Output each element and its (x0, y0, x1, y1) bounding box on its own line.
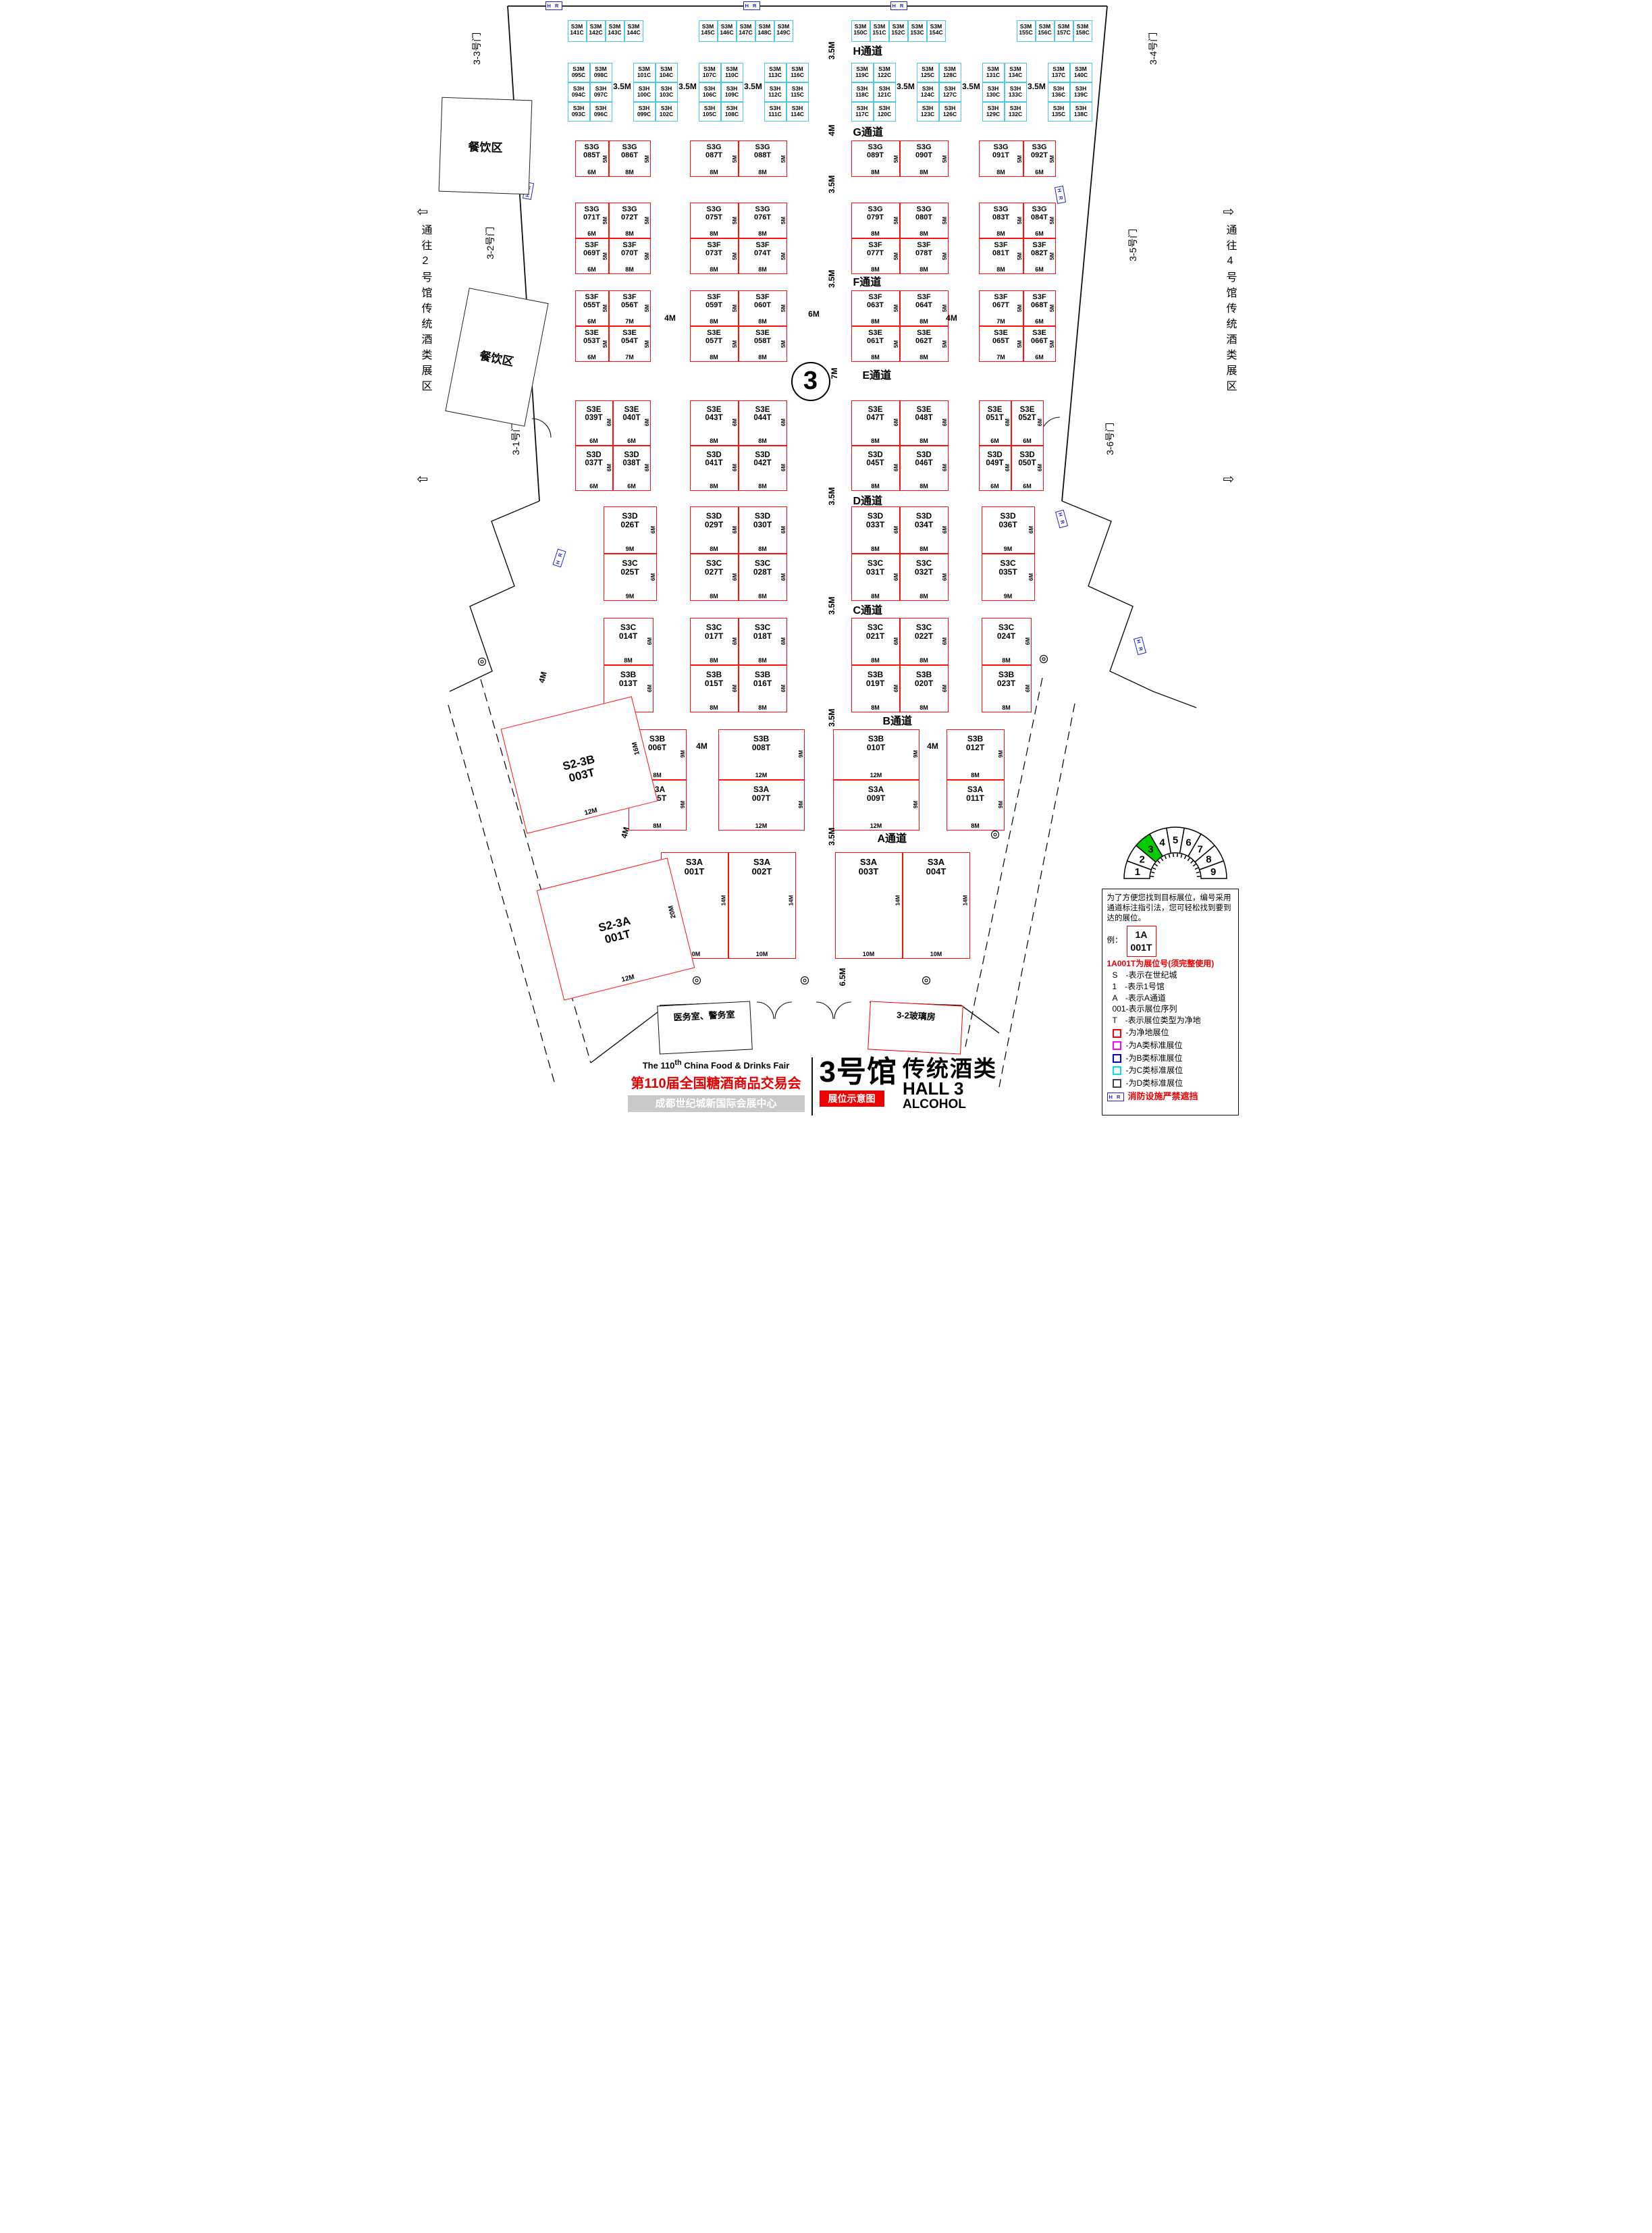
booth-S3H120C[interactable]: S3H120C (874, 102, 896, 122)
dim-label: 3.5M (827, 820, 836, 853)
booth-S3M141C[interactable]: S3M141C (568, 20, 587, 42)
legend-type: -为A类标准展位 (1113, 1041, 1233, 1051)
booth-S3F056T[interactable]: S3F056T5M7M (609, 290, 651, 326)
booth-S3B010T[interactable]: S3B010T9M12M (833, 729, 920, 780)
fire-warning: 消防设施严禁遮挡 (1128, 1091, 1198, 1103)
booth-S3H135C[interactable]: S3H135C (1048, 102, 1070, 122)
dim-label: 4M (936, 313, 968, 323)
dim-label: 3.5M (955, 82, 988, 91)
booth-S3D033T[interactable]: S3D033T6M8M (851, 506, 900, 554)
booth-S3G072T[interactable]: S3G072T5M8M (609, 203, 651, 238)
dim-label: 4M (827, 114, 836, 147)
booth-S3M152C[interactable]: S3M152C (889, 20, 908, 42)
dining-area: 餐饮区 (438, 97, 532, 195)
booth-S3G086T[interactable]: S3G086T5M8M (609, 140, 651, 177)
booth-S3H126C[interactable]: S3H126C (939, 102, 961, 122)
booth-S3M158C[interactable]: S3M158C (1073, 20, 1092, 42)
minimap-tick (1184, 856, 1185, 859)
booth-S3M134C[interactable]: S3M134C (1005, 63, 1027, 82)
booth-S3F070T[interactable]: S3F070T5M8M (609, 238, 651, 274)
booth-S3H115C[interactable]: S3H115C (787, 82, 809, 102)
minimap-tick (1193, 864, 1196, 866)
dim-label: 3.5M (606, 82, 639, 91)
booth-S3G092T[interactable]: S3G092T5M6M (1023, 140, 1056, 177)
minimap-tick (1169, 854, 1169, 858)
minimap-hall-number: 6 (1185, 837, 1191, 848)
legend-type-swatch (1113, 1029, 1121, 1038)
minimap-tick (1157, 861, 1160, 864)
minimap-tick (1161, 858, 1163, 861)
booth-S3D030T[interactable]: S3D030T6M8M (739, 506, 787, 554)
booth-S3A009T[interactable]: S3A009T9M12M (833, 780, 920, 831)
dim-label: 3.5M (1021, 82, 1053, 91)
minimap-tick (1154, 864, 1157, 866)
booth-S3H114C[interactable]: S3H114C (787, 102, 809, 122)
door-label: 3-2号门 (483, 227, 497, 259)
booth-S3M157C[interactable]: S3M157C (1055, 20, 1073, 42)
booth-S3E065T[interactable]: S3E065T5M7M (979, 326, 1023, 362)
room-service: 医务室、警务室 (657, 1001, 753, 1054)
title-divider (811, 1057, 813, 1115)
hydrant-marker: H R (545, 1, 562, 10)
left-arrow-icon: ⇦ (417, 205, 429, 219)
booth-S3M122C[interactable]: S3M122C (874, 63, 896, 82)
minimap-hall-number: 8 (1206, 854, 1211, 866)
booth-S3M101C[interactable]: S3M101C (633, 63, 656, 82)
dim-label: 3.5M (827, 702, 836, 734)
right-arrow-icon: ⇨ (1223, 473, 1235, 486)
booth-S3H139C[interactable]: S3H139C (1070, 82, 1092, 102)
booth-S3G071T[interactable]: S3G071T5M6M (575, 203, 609, 238)
booth-S3G087T[interactable]: S3G087T5M8M (690, 140, 739, 177)
booth-S3H111C[interactable]: S3H111C (764, 102, 787, 122)
booth-S3C035T[interactable]: S3C035T6M9M (982, 554, 1035, 601)
booth-S3G085T[interactable]: S3G085T5M6M (575, 140, 609, 177)
fair-name-en: The 110th China Food & Drinks Fair (628, 1059, 805, 1070)
hydrant-marker: H R (552, 549, 566, 568)
dim-label: 4M (686, 741, 718, 751)
booth-S3D042T[interactable]: S3D042T6M8M (739, 446, 787, 491)
minimap-tick (1188, 858, 1190, 861)
booth-S3M104C[interactable]: S3M104C (656, 63, 678, 82)
hall-category-cn: 传统酒类 (903, 1057, 997, 1080)
booth-S3C022T[interactable]: S3C022T6M8M (900, 618, 949, 665)
booth-S3M142C[interactable]: S3M142C (587, 20, 606, 42)
legend-type-swatch (1113, 1066, 1121, 1075)
booth-S3F063T[interactable]: S3F063T5M8M (851, 290, 900, 326)
booth-S3E062T[interactable]: S3E062T5M8M (900, 326, 949, 362)
booth-S3F081T[interactable]: S3F081T5M8M (979, 238, 1023, 274)
booth-S3M154C[interactable]: S3M154C (927, 20, 946, 42)
booth-S3G083T[interactable]: S3G083T5M8M (979, 203, 1023, 238)
booth-S3H099C[interactable]: S3H099C (633, 102, 656, 122)
hydrant-marker: H R (1133, 637, 1146, 656)
booth-S3E052T[interactable]: S3E052T6M6M (1011, 400, 1044, 446)
minimap-hall-number: 3 (1148, 843, 1153, 855)
booth-S3A004T[interactable]: S3A004T14M10M (903, 852, 970, 959)
booth-S3M143C[interactable]: S3M143C (606, 20, 624, 42)
booth-S3G079T[interactable]: S3G079T5M8M (851, 203, 900, 238)
booth-S3E061T[interactable]: S3E061T5M8M (851, 326, 900, 362)
dining-area: 餐饮区 (445, 288, 548, 426)
booth-S3M140C[interactable]: S3M140C (1070, 63, 1092, 82)
booth-S3M113C[interactable]: S3M113C (764, 63, 787, 82)
legend-type-label: -为A类标准展位 (1126, 1041, 1183, 1051)
minimap-hall-number: 7 (1197, 843, 1202, 855)
booth-S3H108C[interactable]: S3H108C (721, 102, 743, 122)
dim-label: 7M (830, 357, 839, 390)
aisle-label: H通道 (853, 42, 883, 58)
dim-label: 4M (617, 818, 633, 847)
hall-category-en: ALCOHOL (903, 1098, 997, 1112)
hydrant-marker: H R (890, 1, 907, 10)
booth-S3F067T[interactable]: S3F067T5M7M (979, 290, 1023, 326)
dim-label: 6.5M (838, 961, 847, 993)
legend-type-label: -为净地展位 (1126, 1028, 1169, 1039)
legend-type-label: -为D类标准展位 (1126, 1078, 1183, 1089)
minimap-tick (1196, 872, 1199, 872)
room-glass: 3-2玻璃房 (868, 1001, 963, 1054)
booth-S3H132C[interactable]: S3H132C (1005, 102, 1027, 122)
minimap-hall-number: 4 (1159, 837, 1165, 848)
booth-S3G089T[interactable]: S3G089T5M8M (851, 140, 900, 177)
booth-S3C018T[interactable]: S3C018T6M8M (739, 618, 787, 665)
legend-key: 1 -表示1号馆 (1113, 982, 1233, 993)
minimap-hall-number: 5 (1172, 835, 1177, 846)
booth-S3E044T[interactable]: S3E044T6M8M (739, 400, 787, 446)
minimap-hall-number: 1 (1134, 866, 1140, 878)
aisle-label: F通道 (853, 273, 882, 289)
venue-name: 成都世纪城新国际会展中心 (628, 1095, 805, 1112)
booth-S3M145C[interactable]: S3M145C (699, 20, 718, 42)
fair-name-en-prefix: The 110 (643, 1060, 675, 1070)
fair-name-en-suffix: China Food & Drinks Fair (682, 1060, 790, 1070)
minimap-tick (1152, 868, 1156, 869)
booth-S3M147C[interactable]: S3M147C (737, 20, 755, 42)
legend-type-swatch (1113, 1041, 1121, 1050)
booth-S3D029T[interactable]: S3D029T6M8M (690, 506, 739, 554)
legend-example-note: 1A001T为展位号(须完整使用) (1107, 959, 1233, 970)
door-label: 3-4号门 (1146, 32, 1160, 65)
booth-S3M150C[interactable]: S3M150C (851, 20, 870, 42)
hall-name-cn: 3号馆 (820, 1057, 897, 1087)
legend-type-swatch (1113, 1054, 1121, 1063)
example-booth-line2: 001T (1127, 941, 1156, 955)
title-block: The 110th China Food & Drinks Fair 第110届… (628, 1057, 1100, 1115)
booth-S3E048T[interactable]: S3E048T6M8M (900, 400, 949, 446)
hydrant-marker: H R (743, 1, 760, 10)
fair-name-cn: 第110届全国糖酒商品交易会 (628, 1072, 805, 1092)
booth-S3B023T[interactable]: S3B023T6M8M (982, 665, 1032, 712)
booth-S3B012T[interactable]: S3B012T9M8M (947, 729, 1005, 780)
booth-S3C017T[interactable]: S3C017T6M8M (690, 618, 739, 665)
booth-S3M107C[interactable]: S3M107C (699, 63, 721, 82)
booth-S2-3A001T[interactable]: S2-3A001T20M12M (536, 858, 695, 1000)
legend-key-list: S -表示在世纪城1 -表示1号馆A -表示A通道001-表示展位序列T -表示… (1107, 970, 1233, 1026)
legend-key: A -表示A通道 (1113, 993, 1233, 1004)
booth-S3E058T[interactable]: S3E058T5M8M (739, 326, 787, 362)
legend-type-swatch (1113, 1079, 1121, 1088)
aisle-label: D通道 (853, 492, 883, 508)
booth-S3H138C[interactable]: S3H138C (1070, 102, 1092, 122)
booth-S3M148C[interactable]: S3M148C (755, 20, 774, 42)
booth-S3C021T[interactable]: S3C021T6M8M (851, 618, 900, 665)
booth-S3M146C[interactable]: S3M146C (718, 20, 737, 42)
hydrant-marker-legend: H R (1107, 1093, 1124, 1101)
booth-S3F059T[interactable]: S3F059T5M8M (690, 290, 739, 326)
legend-type-label: -为B类标准展位 (1126, 1053, 1183, 1064)
booth-S3A007T[interactable]: S3A007T9M12M (718, 780, 805, 831)
minimap-hall-number: 9 (1210, 866, 1215, 878)
booth-S3D041T[interactable]: S3D041T6M8M (690, 446, 739, 491)
legend-type: -为B类标准展位 (1113, 1053, 1233, 1064)
booth-S3G088T[interactable]: S3G088T5M8M (739, 140, 787, 177)
left-arrow-icon: ⇦ (417, 473, 429, 486)
dim-label: 3.5M (827, 263, 836, 295)
booth-S3M156C[interactable]: S3M156C (1036, 20, 1055, 42)
hydrant-marker: H R (1054, 186, 1065, 204)
aisle-label: A通道 (878, 829, 907, 845)
booth-S3C025T[interactable]: S3C025T6M9M (604, 554, 657, 601)
booth-S3M128C[interactable]: S3M128C (939, 63, 961, 82)
booth-S3E054T[interactable]: S3E054T5M7M (609, 326, 651, 362)
dim-label: 3.5M (827, 589, 836, 622)
booth-S3B016T[interactable]: S3B016T6M8M (739, 665, 787, 712)
booth-S3H094C[interactable]: S3H094C (568, 82, 590, 102)
door-label: 3-5号门 (1126, 229, 1140, 261)
booth-S3F068T[interactable]: S3F068T5M6M (1023, 290, 1056, 326)
booth-S3E057T[interactable]: S3E057T5M8M (690, 326, 739, 362)
booth-S3M144C[interactable]: S3M144C (624, 20, 643, 42)
legend-type: -为D类标准展位 (1113, 1078, 1233, 1089)
dim-label: 6M (798, 309, 830, 319)
booth-S3H123C[interactable]: S3H123C (917, 102, 939, 122)
booth-S3D049T[interactable]: S3D049T6M6M (979, 446, 1011, 491)
booth-S3F055T[interactable]: S3F055T5M6M (575, 290, 609, 326)
hall-number-badge: 3 (791, 362, 830, 401)
booth-S3A002T[interactable]: S3A002T14M10M (728, 852, 796, 959)
booth-S3M098C[interactable]: S3M098C (590, 63, 612, 82)
booth-S3B020T[interactable]: S3B020T6M8M (900, 665, 949, 712)
booth-S3E039T[interactable]: S3E039T6M6M (575, 400, 613, 446)
booth-S3M149C[interactable]: S3M149C (774, 20, 793, 42)
right-arrow-icon: ⇨ (1223, 205, 1235, 219)
booth-S3H093C[interactable]: S3H093C (568, 102, 590, 122)
booth-S3G076T[interactable]: S3G076T5M8M (739, 203, 787, 238)
booth-S3A011T[interactable]: S3A011T9M8M (947, 780, 1005, 831)
aisle-label: E通道 (863, 366, 892, 382)
booth-S3C024T[interactable]: S3C024T6M8M (982, 618, 1032, 665)
booth-S3B008T[interactable]: S3B008T9M12M (718, 729, 805, 780)
booth-S3E053T[interactable]: S3E053T5M6M (575, 326, 609, 362)
door-label: 3-6号门 (1103, 423, 1117, 455)
legend-key: T -表示展位类型为净地 (1113, 1016, 1233, 1026)
booth-S3F060T[interactable]: S3F060T5M8M (739, 290, 787, 326)
booth-S3G090T[interactable]: S3G090T5M8M (900, 140, 949, 177)
booth-S3D026T[interactable]: S3D026T6M9M (604, 506, 657, 554)
booth-S3F074T[interactable]: S3F074T5M8M (739, 238, 787, 274)
booth-S3E040T[interactable]: S3E040T6M6M (613, 400, 651, 446)
minimap-tick (1165, 856, 1166, 859)
minimap-tick (1181, 854, 1181, 858)
booth-S3D046T[interactable]: S3D046T6M8M (900, 446, 949, 491)
booth-S3F077T[interactable]: S3F077T5M8M (851, 238, 900, 274)
booth-S3B019T[interactable]: S3B019T6M8M (851, 665, 900, 712)
booth-S3M110C[interactable]: S3M110C (721, 63, 743, 82)
booth-S3D034T[interactable]: S3D034T6M8M (900, 506, 949, 554)
map-type-label: 展位示意图 (820, 1091, 884, 1107)
booth-S3C027T[interactable]: S3C027T6M8M (690, 554, 739, 601)
booth-S3F073T[interactable]: S3F073T5M8M (690, 238, 739, 274)
booth-S3M095C[interactable]: S3M095C (568, 63, 590, 82)
booth-S3E066T[interactable]: S3E066T5M6M (1023, 326, 1056, 362)
booth-S3H096C[interactable]: S3H096C (590, 102, 612, 122)
fair-name-en-sup: th (674, 1059, 681, 1067)
dim-label: 4M (654, 313, 687, 323)
corridor-right-label: 通往4号馆传统酒类展区 (1222, 224, 1238, 396)
hall-minimap: 123456789 (1115, 813, 1237, 885)
booth-S3E047T[interactable]: S3E047T6M8M (851, 400, 900, 446)
booth-S3D038T[interactable]: S3D038T6M6M (613, 446, 651, 491)
legend-key: 001-表示展位序列 (1113, 1004, 1233, 1015)
booth-S3G084T[interactable]: S3G084T5M6M (1023, 203, 1056, 238)
aisle-label: G通道 (853, 123, 883, 139)
booth-S3M125C[interactable]: S3M125C (917, 63, 939, 82)
booth-S3H105C[interactable]: S3H105C (699, 102, 721, 122)
minimap-tick (1190, 861, 1193, 864)
dim-label: 3.5M (827, 34, 836, 67)
booth-S3C032T[interactable]: S3C032T6M8M (900, 554, 949, 601)
booth-S3D050T[interactable]: S3D050T6M6M (1011, 446, 1044, 491)
booth-S3H102C[interactable]: S3H102C (656, 102, 678, 122)
hydrant-marker: H R (1055, 510, 1067, 529)
booth-S3F082T[interactable]: S3F082T5M6M (1023, 238, 1056, 274)
minimap-hall-number: 2 (1139, 854, 1144, 866)
dim-label: 4M (917, 741, 949, 751)
booth-S3M119C[interactable]: S3M119C (851, 63, 874, 82)
legend-intro: 为了方便您找到目标展位，编号采用通道标注指引法，您可轻松找到要到达的展位。 (1107, 893, 1233, 924)
dim-label: 3.5M (737, 82, 770, 91)
booth-S3A003T[interactable]: S3A003T14M10M (835, 852, 903, 959)
legend-type-label: -为C类标准展位 (1126, 1066, 1183, 1076)
door-label: 3-3号门 (470, 32, 483, 65)
booth-S3M153C[interactable]: S3M153C (908, 20, 927, 42)
booth-S3F078T[interactable]: S3F078T5M8M (900, 238, 949, 274)
legend-example-booth: 1A 001T (1127, 926, 1156, 957)
booth-S3E051T[interactable]: S3E051T6M6M (979, 400, 1011, 446)
booth-S3M116C[interactable]: S3M116C (787, 63, 809, 82)
minimap-tick (1151, 872, 1154, 872)
booth-S3C028T[interactable]: S3C028T6M8M (739, 554, 787, 601)
booth-S3H117C[interactable]: S3H117C (851, 102, 874, 122)
minimap-tick (1195, 868, 1198, 869)
hall-name-en: HALL 3 (903, 1080, 997, 1098)
booth-S3E043T[interactable]: S3E043T6M8M (690, 400, 739, 446)
booth-S3C014T[interactable]: S3C014T6M8M (604, 618, 654, 665)
booth-S3M151C[interactable]: S3M151C (870, 20, 889, 42)
door-label: 3-1号门 (509, 423, 523, 455)
aisle-label: C通道 (853, 601, 883, 617)
floor-plan-page: S3M141CS3M142CS3M143CS3M144CS3M145CS3M14… (413, 0, 1240, 1117)
booth-S3F069T[interactable]: S3F069T5M6M (575, 238, 609, 274)
legend-type: -为净地展位 (1113, 1028, 1233, 1039)
legend-type-list: -为净地展位-为A类标准展位-为B类标准展位-为C类标准展位-为D类标准展位 (1107, 1028, 1233, 1088)
corridor-left-label: 通往2号馆传统酒类展区 (417, 224, 433, 396)
booth-S3B015T[interactable]: S3B015T6M8M (690, 665, 739, 712)
booth-S3G075T[interactable]: S3G075T5M8M (690, 203, 739, 238)
example-booth-line1: 1A (1127, 928, 1156, 942)
booth-S3G091T[interactable]: S3G091T5M8M (979, 140, 1023, 177)
legend-type: -为C类标准展位 (1113, 1066, 1233, 1076)
booth-S3C031T[interactable]: S3C031T6M8M (851, 554, 900, 601)
legend-key: S -表示在世纪城 (1113, 970, 1233, 981)
booth-S3D037T[interactable]: S3D037T6M6M (575, 446, 613, 491)
dim-label: 3.5M (672, 82, 704, 91)
booth-S3H129C[interactable]: S3H129C (982, 102, 1005, 122)
aisle-label: B通道 (883, 712, 913, 728)
booth-S3D045T[interactable]: S3D045T6M8M (851, 446, 900, 491)
legend-box: 为了方便您找到目标展位，编号采用通道标注指引法，您可轻松找到要到达的展位。 例：… (1102, 889, 1239, 1115)
booth-S3M137C[interactable]: S3M137C (1048, 63, 1070, 82)
dim-label: 4M (535, 663, 550, 691)
dim-label: 3.5M (827, 168, 836, 201)
legend-example-label: 例： (1107, 936, 1123, 946)
dim-label: 3.5M (890, 82, 922, 91)
booth-S3M131C[interactable]: S3M131C (982, 63, 1005, 82)
dim-label: 3.5M (827, 480, 836, 513)
booth-S3D036T[interactable]: S3D036T6M9M (982, 506, 1035, 554)
booth-S3H118C[interactable]: S3H118C (851, 82, 874, 102)
booth-S3M155C[interactable]: S3M155C (1017, 20, 1036, 42)
booth-S3G080T[interactable]: S3G080T5M8M (900, 203, 949, 238)
